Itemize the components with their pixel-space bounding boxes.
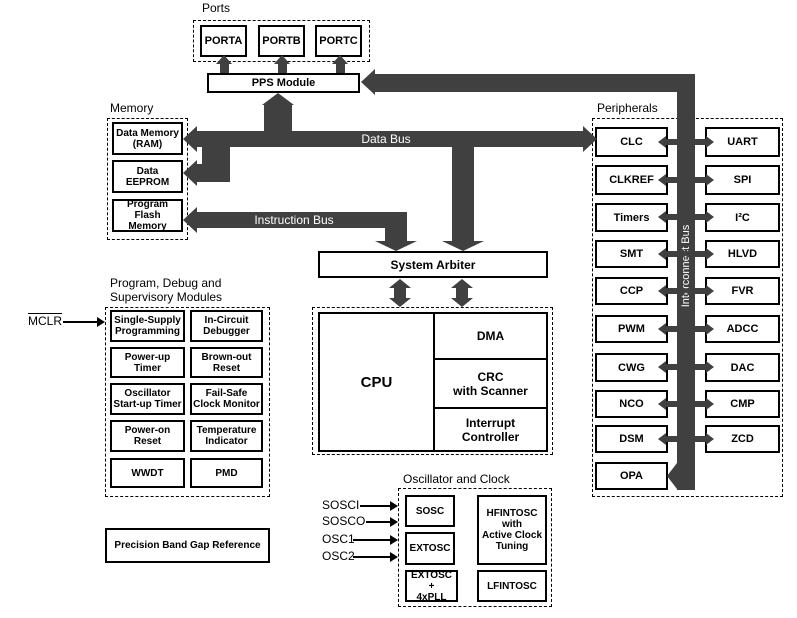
arbiter-cpu-arrow2-down-icon <box>451 298 473 307</box>
data-eeprom-box: Data EEPROM <box>112 160 183 193</box>
temperature-indicator-box: Temperature Indicator <box>190 420 263 452</box>
cpu-cell: CPU <box>320 314 435 450</box>
ccp-interconnect-stub <box>666 288 680 294</box>
oscillator-section-label: Oscillator and Clock <box>403 473 510 487</box>
instruction-bus-to-arbiter-arrowhead-icon <box>375 241 417 251</box>
power-on-reset-box: Power-on Reset <box>110 420 185 452</box>
sosc-box: SOSC <box>405 495 455 527</box>
sosci-arrowhead-icon <box>390 501 398 511</box>
i2c-interconnect-stub <box>692 214 706 220</box>
sosco-label: SOSCO <box>322 515 365 528</box>
data-bus-eeprom-branch-horizontal <box>197 164 230 182</box>
cmp-interconnect-stub <box>692 401 706 407</box>
instruction-bus-arbiter-drop <box>385 226 407 241</box>
sosci-arrow-line <box>360 505 390 507</box>
data-bus-to-pps-arrowhead-icon <box>262 93 294 105</box>
clkref-interconnect-stub <box>666 177 680 183</box>
osc1-arrowhead-icon <box>390 535 398 545</box>
program-flash-memory-box: Program Flash Memory <box>112 199 183 232</box>
data-bus-to-ram-arrowhead-icon <box>183 126 197 152</box>
block-diagram: Ports PORTA PORTB PORTC PPS Module Memor… <box>0 0 797 618</box>
porta-box: PORTA <box>200 25 247 57</box>
instruction-bus-label: Instruction Bus <box>244 213 344 228</box>
oscillator-start-up-timer-box: Oscillator Start-up Timer <box>110 383 185 415</box>
interconnect-to-opa-arrowhead-icon <box>667 463 677 489</box>
dac-box: DAC <box>705 353 780 382</box>
peripherals-section-label: Peripherals <box>597 102 658 116</box>
portc-box: PORTC <box>315 25 362 57</box>
dac-interconnect-stub <box>692 364 706 370</box>
spi-interconnect-stub <box>692 177 706 183</box>
band-gap-reference-box: Precision Band Gap Reference <box>105 528 270 563</box>
pwm-interconnect-stub <box>666 326 680 332</box>
data-bus-to-eeprom-arrowhead-icon <box>183 160 197 186</box>
hlvd-interconnect-stub <box>692 251 706 257</box>
in-circuit-debugger-box: In-Circuit Debugger <box>190 310 263 342</box>
debug-section-title: Program, Debug and Supervisory Modules <box>110 277 222 304</box>
data-bus-to-clc-arrowhead-icon <box>583 126 597 152</box>
data-bus-label: Data Bus <box>336 132 436 147</box>
instruction-bus-to-flash-arrowhead-icon <box>183 207 197 233</box>
lfintosc-box: LFINTOSC <box>477 570 547 602</box>
arbiter-cpu-arrow1-down-icon <box>389 298 411 307</box>
osc2-label: OSC2 <box>322 550 355 563</box>
mclr-overline-text: MCLR <box>28 313 62 328</box>
nco-interconnect-stub <box>666 401 680 407</box>
pmd-box: PMD <box>190 458 263 488</box>
zcd-interconnect-stub <box>692 436 706 442</box>
pps-to-porta-arrowhead-icon <box>216 55 232 64</box>
hfintosc-box: HFINTOSC with Active Clock Tuning <box>477 495 547 565</box>
uart-interconnect-stub <box>692 139 706 145</box>
opa-box: OPA <box>595 462 668 490</box>
fvr-box: FVR <box>705 277 780 305</box>
spi-box: SPI <box>705 165 780 195</box>
adcc-interconnect-stub <box>692 326 706 332</box>
osc2-arrow-line <box>353 556 390 558</box>
single-supply-programming-box: Single-Supply Programming <box>110 310 185 342</box>
pps-to-portc-arrowhead-icon <box>332 55 348 64</box>
extosc-4xpll-box: EXTOSC + 4xPLL <box>405 570 458 602</box>
data-bus-pps-riser <box>264 104 292 132</box>
hlvd-box: HLVD <box>705 240 780 268</box>
cpu-right-column: DMA CRC with Scanner Interrupt Controlle… <box>435 314 546 450</box>
power-up-timer-box: Power-up Timer <box>110 347 185 378</box>
dma-cell: DMA <box>435 314 546 360</box>
uart-box: UART <box>705 127 780 157</box>
ports-section-label: Ports <box>202 2 230 16</box>
i2c-box: I²C <box>705 203 780 232</box>
mclr-label: MCLR <box>28 313 62 328</box>
data-memory-ram-box: Data Memory (RAM) <box>112 122 183 155</box>
interrupt-controller-cell: Interrupt Controller <box>435 409 546 450</box>
sosco-arrow-line <box>366 521 390 523</box>
smt-interconnect-stub <box>666 251 680 257</box>
memory-section-label: Memory <box>110 102 153 116</box>
zcd-box: ZCD <box>705 425 780 453</box>
cwg-interconnect-stub <box>666 364 680 370</box>
timers-interconnect-stub <box>666 214 680 220</box>
sosci-label: SOSCI <box>322 499 359 512</box>
dsm-interconnect-stub <box>666 436 680 442</box>
mclr-arrow-line <box>63 321 98 323</box>
interconnect-bus-top-segment <box>375 74 695 92</box>
system-arbiter-box: System Arbiter <box>318 251 548 278</box>
brown-out-reset-box: Brown-out Reset <box>190 347 263 378</box>
cpu-core-block: CPU DMA CRC with Scanner Interrupt Contr… <box>318 312 548 452</box>
data-bus-to-arbiter-arrowhead-icon <box>442 241 484 251</box>
osc2-arrowhead-icon <box>390 552 398 562</box>
crc-scanner-cell: CRC with Scanner <box>435 360 546 409</box>
extosc-box: EXTOSC <box>405 532 455 565</box>
osc1-arrow-line <box>353 539 390 541</box>
clc-interconnect-stub <box>666 139 680 145</box>
data-bus-arbiter-drop <box>452 147 474 241</box>
osc1-label: OSC1 <box>322 533 355 546</box>
pps-module-box: PPS Module <box>207 73 360 93</box>
fail-safe-clock-monitor-box: Fail-Safe Clock Monitor <box>190 383 263 415</box>
wwdt-box: WWDT <box>110 458 185 488</box>
mclr-arrowhead-icon <box>97 317 105 327</box>
cmp-box: CMP <box>705 390 780 418</box>
pps-to-portb-arrowhead-icon <box>274 55 290 64</box>
interconnect-to-pps-arrowhead-icon <box>361 69 375 95</box>
fvr-interconnect-stub <box>692 288 706 294</box>
adcc-box: ADCC <box>705 315 780 343</box>
interconnect-bus-label: Interconnect Bus <box>679 211 693 321</box>
sosco-arrowhead-icon <box>390 517 398 527</box>
portb-box: PORTB <box>258 25 305 57</box>
